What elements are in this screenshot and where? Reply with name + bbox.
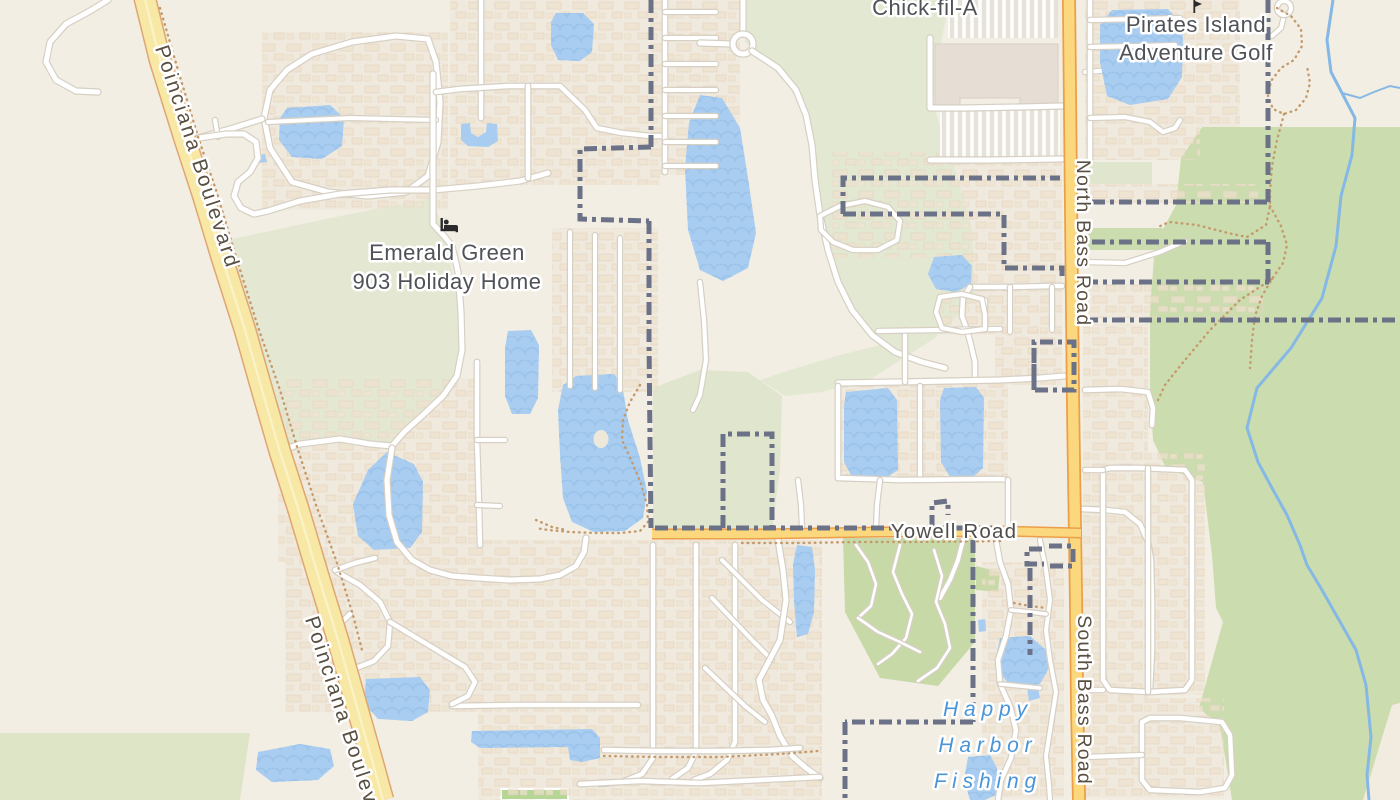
svg-text:North Bass Road: North Bass Road bbox=[1072, 160, 1094, 327]
svg-text:H a p p y: H a p p y bbox=[943, 698, 1029, 721]
svg-text:Chick-fil-A: Chick-fil-A bbox=[872, 0, 978, 20]
svg-text:South Bass Road: South Bass Road bbox=[1073, 615, 1095, 785]
svg-text:H a r b o r: H a r b o r bbox=[938, 734, 1032, 757]
svg-text:Pirates Island: Pirates Island bbox=[1126, 12, 1266, 37]
svg-text:Adventure Golf: Adventure Golf bbox=[1119, 40, 1273, 65]
svg-text:903 Holiday Home: 903 Holiday Home bbox=[353, 269, 542, 294]
svg-text:F i s h i n g: F i s h i n g bbox=[934, 770, 1037, 793]
svg-text:Yowell Road: Yowell Road bbox=[891, 520, 1017, 543]
svg-text:Emerald Green: Emerald Green bbox=[369, 240, 525, 265]
